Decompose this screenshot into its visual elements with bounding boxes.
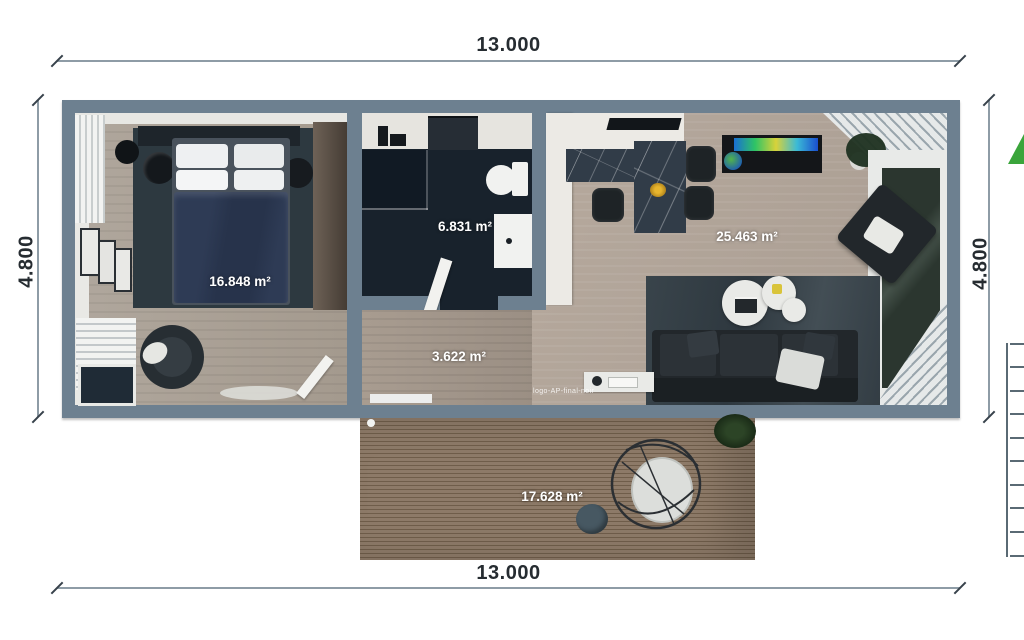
bathroom-area-label: 6.831 m²: [405, 219, 525, 234]
bedroom-window: [78, 364, 136, 406]
kitchen-window-slot: [606, 118, 681, 130]
bedroom-area-label: 16.848 m²: [180, 274, 300, 289]
kitchen-island-marble: [566, 149, 636, 182]
interior-wall: [347, 383, 362, 405]
sofa-back: [652, 378, 858, 402]
throw-pillow: [686, 330, 719, 358]
dining-chair: [592, 188, 624, 222]
floor-plan-canvas: 13.000 13.000 4.800 4.800: [0, 0, 1024, 640]
nightstand-left: [143, 152, 175, 184]
interior-wall: [498, 296, 532, 310]
interior-wall: [347, 113, 362, 330]
bedroom-round-chair: [140, 325, 204, 389]
armchair-pillow: [862, 215, 905, 255]
texture-placeholder-text: logo-AP-final-noir: [533, 388, 594, 395]
interior-wall: [532, 113, 546, 310]
dimension-bottom-label: 13.000: [57, 562, 960, 585]
sofa-cushion: [720, 334, 778, 376]
globe-decor: [724, 152, 742, 170]
hanging-egg-chair: [598, 432, 708, 536]
wardrobe: [313, 122, 347, 310]
green-triangle-logo: [1008, 134, 1024, 164]
entrance-threshold: [370, 394, 432, 403]
pillow: [176, 144, 228, 168]
deck-plant: [714, 414, 756, 448]
dining-chair: [686, 146, 716, 182]
coffee-table-small: [782, 298, 806, 322]
books: [735, 297, 757, 313]
terrace-area-label: 17.628 m²: [492, 489, 612, 504]
floor-lamp: [115, 140, 139, 164]
dimension-right-label: 4.800: [970, 224, 993, 304]
dimension-bottom-line: [57, 587, 960, 589]
sofa: [652, 330, 858, 402]
hallway-area-label: 3.622 m²: [399, 349, 519, 364]
dimension-top-line: [57, 60, 960, 62]
living-area-label: 25.463 m²: [687, 229, 807, 244]
shower-zone: [362, 150, 428, 210]
pillow: [234, 144, 284, 168]
media-console: [584, 372, 654, 392]
shower-glass: [426, 150, 428, 210]
picture-frame: [114, 248, 132, 292]
tv-console: [722, 135, 822, 173]
bedroom-top-wall-lining: [75, 113, 347, 124]
table-flowers: [650, 183, 666, 197]
deck-stool: [576, 504, 608, 534]
pillow: [234, 170, 284, 190]
bath-accessory: [390, 134, 406, 146]
sheepskin-rug: [220, 386, 298, 400]
coffee-table-large: [722, 280, 768, 326]
door-knob: [367, 419, 375, 427]
tv-screen: [734, 138, 818, 151]
toilet-bowl: [486, 165, 516, 195]
shower-glass: [362, 208, 428, 210]
picture-frame: [80, 228, 100, 276]
bedroom-curtain: [75, 115, 105, 223]
device: [608, 377, 638, 388]
dimension-top-label: 13.000: [57, 34, 960, 57]
edge-ruler: [1006, 343, 1024, 557]
dimension-left-label: 4.800: [16, 222, 39, 302]
decor-item: [772, 284, 782, 294]
kitchen-counter: [546, 113, 572, 305]
pillow: [176, 170, 228, 190]
speaker: [592, 376, 602, 386]
building-outline: logo-AP-final-noir: [62, 100, 960, 418]
bath-accessory: [378, 126, 388, 146]
dining-chair: [684, 186, 714, 220]
faucet: [506, 238, 512, 244]
bathroom-mirror-cabinet: [428, 116, 478, 150]
